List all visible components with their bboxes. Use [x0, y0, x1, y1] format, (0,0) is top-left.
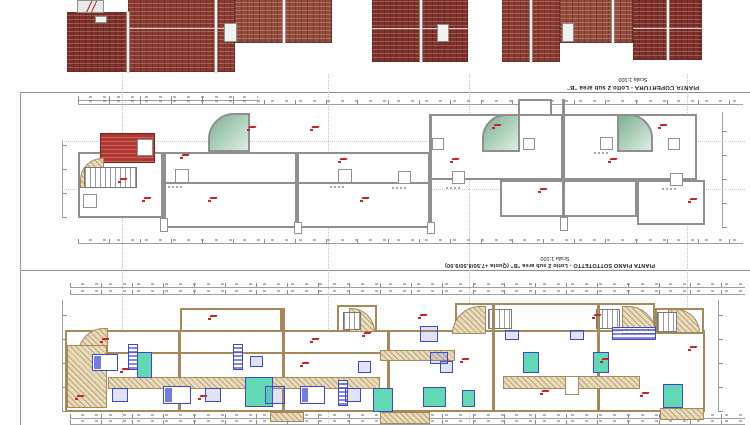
room-tag — [118, 178, 127, 183]
green-terrace — [208, 113, 250, 152]
chimney — [562, 23, 574, 42]
room-tag — [600, 358, 609, 363]
attic-plan-scale: Scala 1:100 — [455, 254, 655, 261]
room-area-text — [392, 187, 406, 189]
roof-ridge — [420, 0, 422, 62]
fixture — [505, 330, 519, 340]
room-area-text — [662, 188, 676, 190]
attic-room — [297, 152, 430, 228]
room-tag — [640, 392, 649, 397]
bathroom — [423, 387, 446, 407]
balcony-tab — [660, 408, 704, 420]
attic-room — [500, 180, 637, 217]
room-tag — [360, 197, 369, 202]
fixture — [570, 330, 584, 340]
bathroom — [663, 384, 683, 408]
skylight — [338, 169, 352, 183]
room-tag — [688, 346, 697, 351]
section-separator — [20, 92, 750, 93]
architectural-sheet: PIANTA COPERTURA - Lotto 2 sub area "B" … — [0, 0, 750, 425]
room-area-text — [168, 186, 182, 188]
sheet-border — [20, 92, 21, 425]
room-tag — [208, 315, 217, 320]
bathroom — [462, 390, 475, 407]
staircase — [84, 167, 137, 188]
skylight — [600, 137, 613, 150]
skylight — [452, 171, 465, 184]
room-tag — [688, 198, 697, 203]
room-tag — [310, 126, 319, 131]
room-tag — [208, 197, 217, 202]
skylight — [398, 171, 411, 184]
dimension-line — [70, 290, 745, 295]
roof-plan-title: PIANTA COPERTURA - Lotto 2 sub area "B" — [558, 82, 708, 90]
stair-tower-roof — [77, 0, 104, 13]
room-tag — [100, 338, 109, 343]
room-tag — [142, 197, 151, 202]
party-wall — [429, 114, 432, 230]
staircase — [657, 312, 677, 332]
room-tag — [310, 338, 319, 343]
table-chairs — [112, 388, 128, 402]
chimney — [224, 23, 237, 42]
roof-ridge — [215, 0, 217, 72]
room-tag — [247, 126, 256, 131]
room-tag — [460, 358, 469, 363]
dimension-line — [718, 300, 723, 412]
kitchen-unit — [233, 344, 243, 370]
skylight — [670, 173, 683, 186]
room-tag — [180, 154, 189, 159]
room-tag — [338, 158, 347, 163]
roof-ridge — [667, 0, 669, 60]
dimension-line — [78, 239, 743, 244]
door-box — [565, 376, 579, 395]
room-tag — [592, 314, 601, 319]
roof-mass — [128, 0, 235, 72]
chimney — [95, 16, 107, 23]
dimension-line — [722, 112, 727, 228]
roof-opening — [137, 139, 153, 156]
room-tag — [120, 368, 129, 373]
skylight — [432, 138, 444, 150]
table-chairs — [345, 388, 361, 402]
kitchen-unit — [128, 344, 138, 370]
room-tag — [418, 314, 427, 319]
attic-roof-notch — [518, 99, 552, 116]
bed — [300, 386, 325, 404]
roof-eave-line — [128, 28, 235, 29]
room-tag — [492, 124, 501, 129]
dimension-line — [62, 140, 67, 218]
roof-ridge — [612, 0, 614, 43]
room-tag — [608, 158, 617, 163]
room-tag — [362, 332, 371, 337]
roof-ridge — [127, 12, 129, 72]
bathroom — [373, 388, 393, 412]
party-wall — [296, 152, 299, 230]
dimension-line — [78, 100, 743, 105]
room-tag — [450, 158, 459, 163]
party-wall — [492, 303, 495, 412]
roof-eave-line — [372, 28, 468, 29]
room-tag — [538, 188, 547, 193]
wall-foot — [427, 222, 435, 234]
room-tag — [198, 395, 207, 400]
skylight — [668, 138, 680, 150]
table-chairs — [250, 356, 263, 367]
roof-ridge — [283, 0, 285, 43]
interior-wall — [163, 182, 430, 184]
roof-eave-line — [633, 28, 702, 29]
bathroom — [137, 352, 152, 378]
room-area-text — [594, 152, 608, 154]
room-tag — [300, 362, 309, 367]
wall-foot — [294, 222, 302, 234]
kitchen-unit — [612, 327, 656, 340]
wardrobe — [430, 352, 448, 364]
roof-ridge — [530, 0, 532, 62]
balcony-tab — [270, 412, 304, 422]
skylight — [175, 169, 189, 183]
bed — [163, 386, 191, 404]
attic-room — [163, 152, 297, 228]
roof-plan-label: PIANTA COPERTURA - Lotto 2 sub area "B" … — [558, 73, 708, 90]
fixture — [420, 326, 438, 342]
room-area-text — [330, 186, 344, 188]
attic-plan-title: PIANTA PIANO SOTTOTETTO - Lotto 2 sub ar… — [455, 261, 655, 268]
skylight — [523, 138, 535, 150]
party-wall — [562, 99, 565, 217]
wardrobe — [265, 386, 285, 404]
bed — [92, 354, 118, 371]
room-tag — [658, 124, 667, 129]
balcony-tab — [380, 412, 430, 424]
upper-bay — [180, 308, 282, 332]
section-separator — [20, 270, 750, 271]
room-tag — [75, 395, 84, 400]
table-chairs — [358, 361, 371, 373]
room-area-text — [446, 187, 460, 189]
roof-plan-scale: Scala 1:100 — [558, 75, 708, 82]
staircase — [343, 312, 361, 330]
skylight — [83, 194, 97, 208]
wall-foot — [160, 218, 168, 232]
dimension-line — [70, 283, 745, 288]
attic-plan-label: PIANTA PIANO SOTTOTETTO - Lotto 2 sub ar… — [455, 251, 655, 268]
bathroom — [523, 352, 539, 373]
chimney — [437, 24, 449, 42]
room-tag — [540, 390, 549, 395]
wall-foot — [560, 217, 568, 231]
